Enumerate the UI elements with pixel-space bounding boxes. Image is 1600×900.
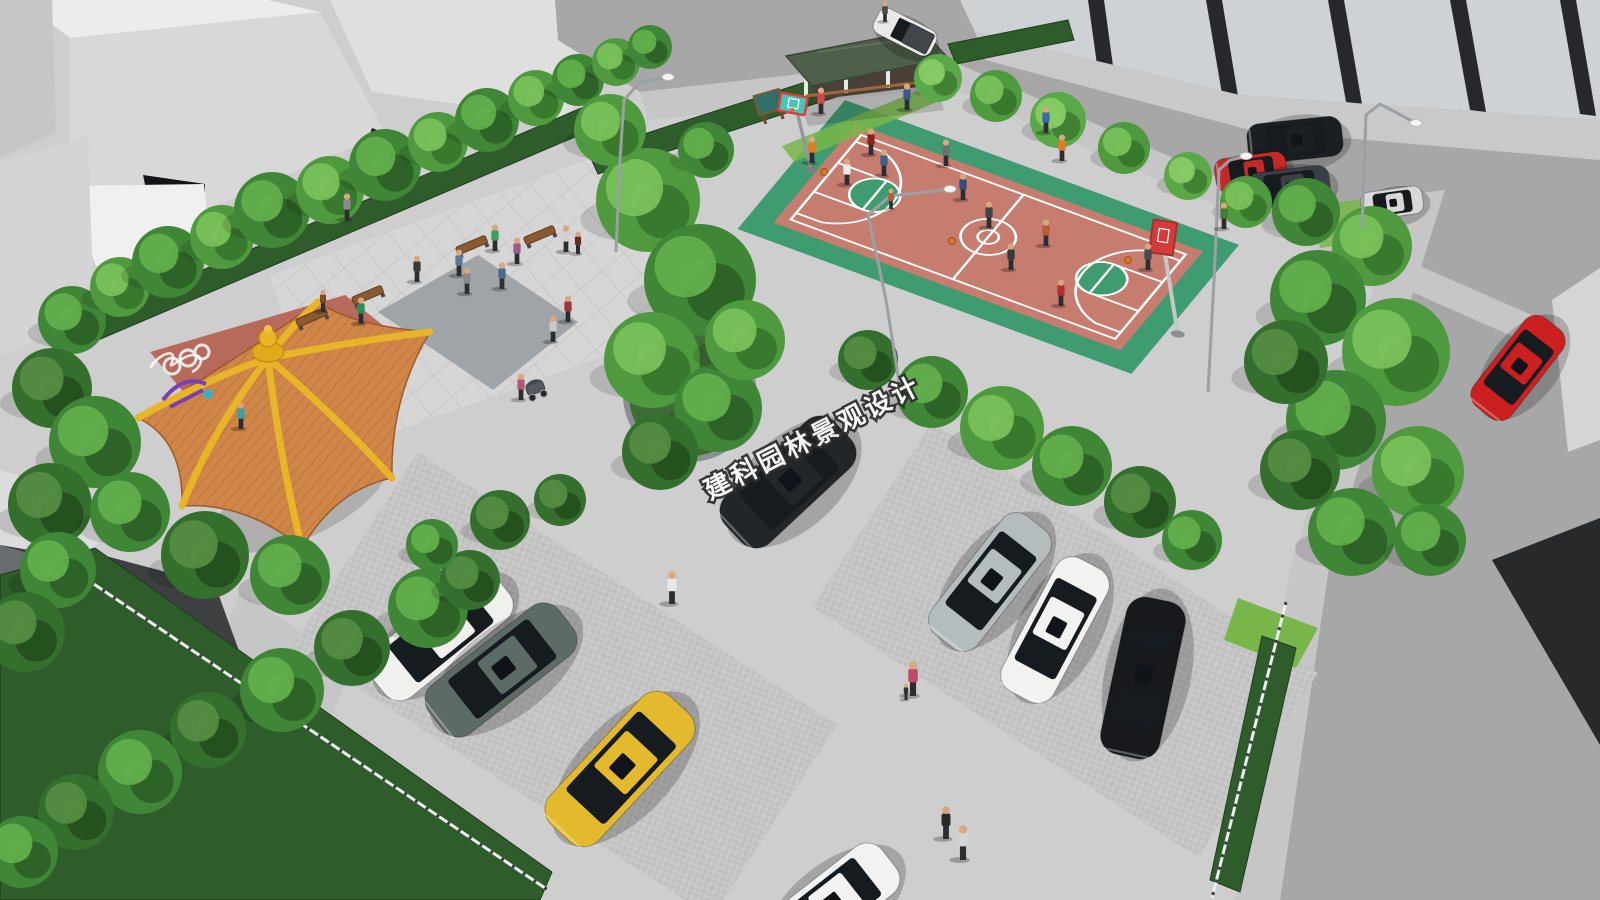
fitness-ball	[203, 389, 213, 399]
basketball	[821, 169, 828, 176]
scene-canvas: 建科园林景观设计	[0, 0, 1600, 900]
basketball	[949, 238, 956, 245]
landscape-rendering: 建科园林景观设计	[0, 0, 1600, 900]
building-far-left	[0, 0, 56, 158]
basketball	[1125, 257, 1132, 264]
pavilion-finial-top	[264, 325, 272, 333]
